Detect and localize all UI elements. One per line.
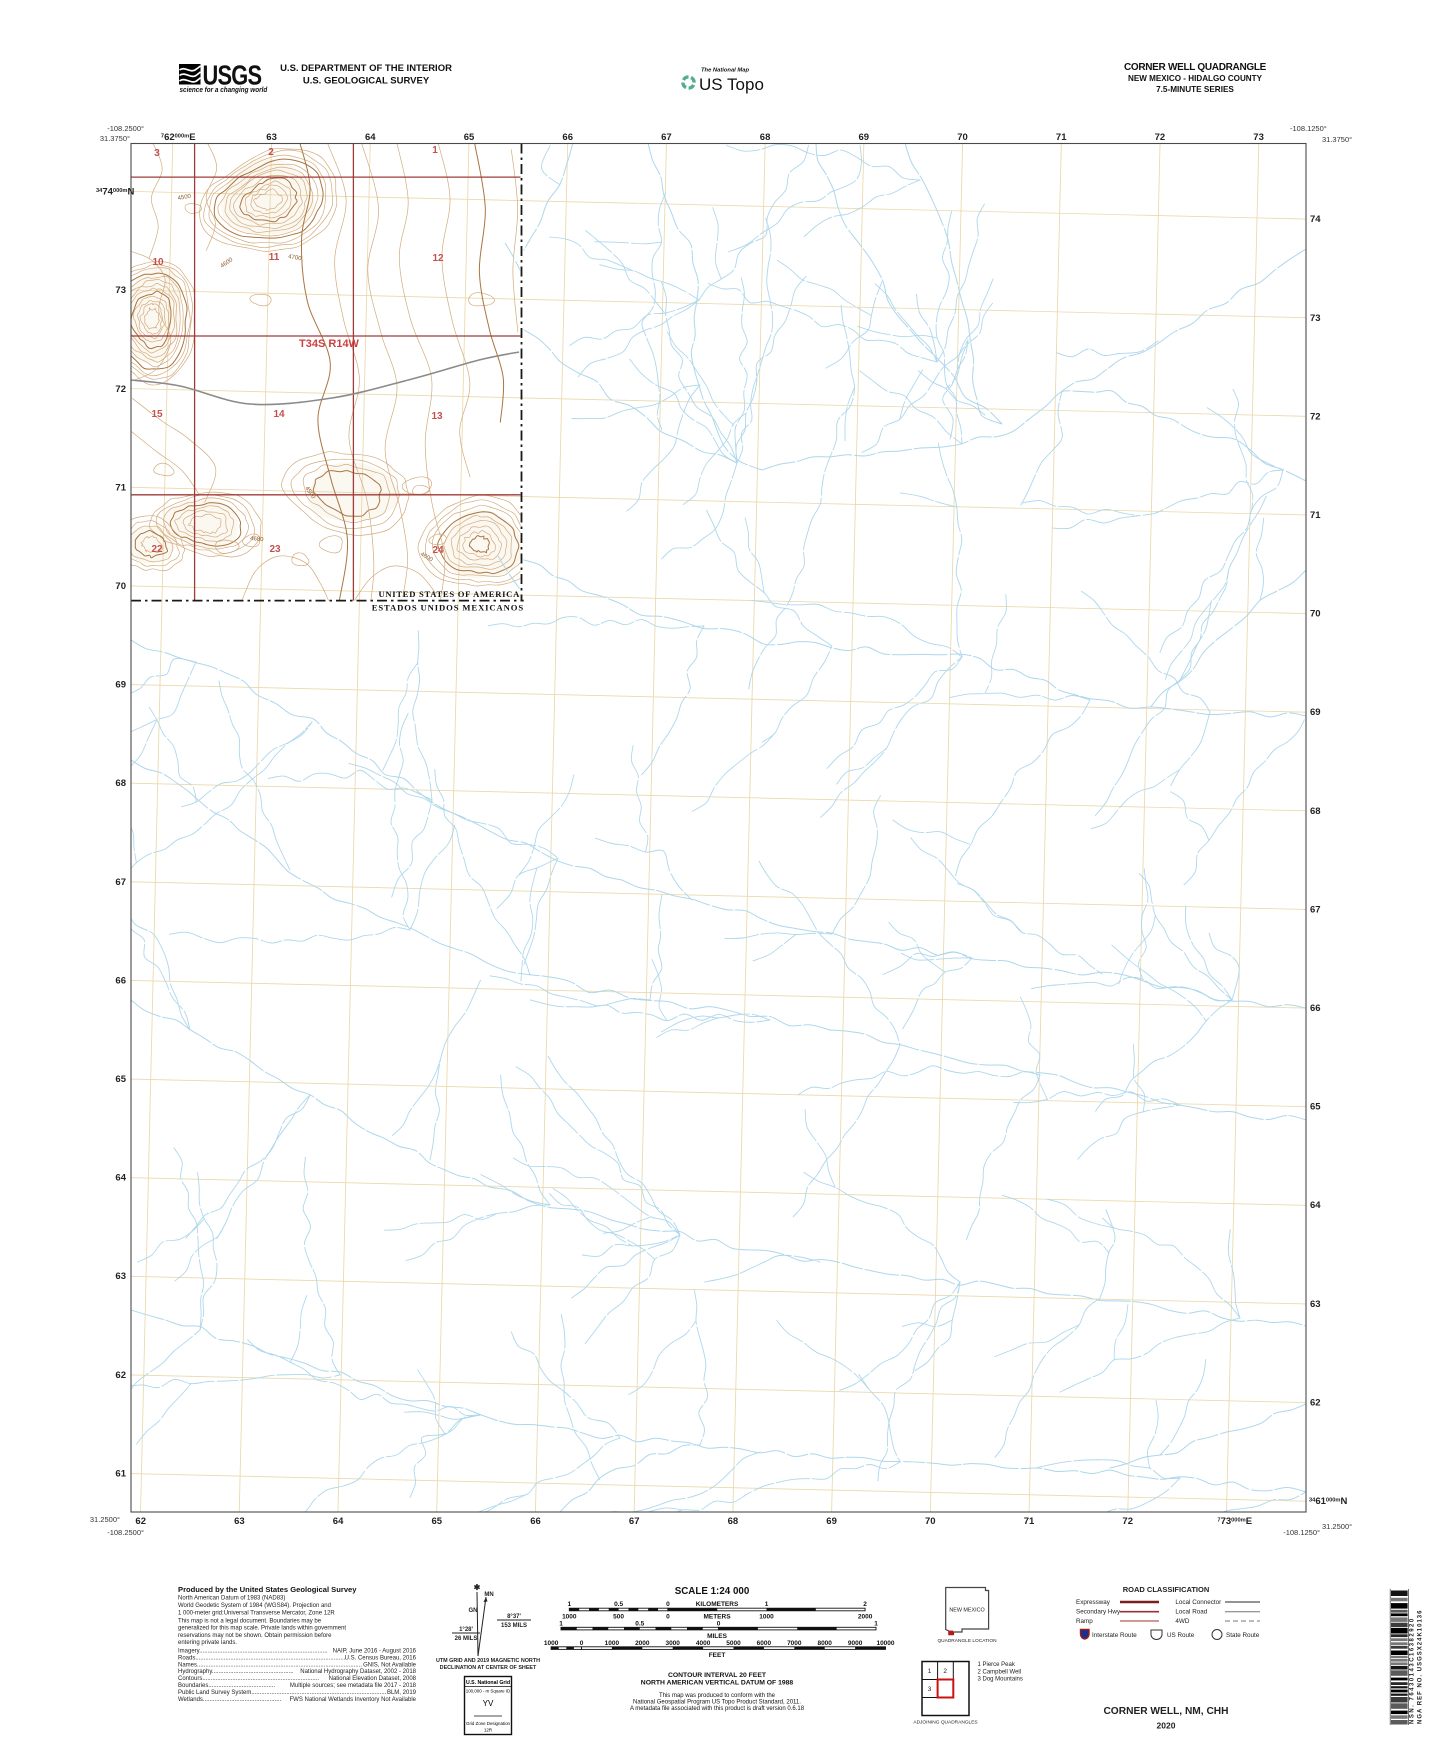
svg-text:62: 62: [1310, 1397, 1321, 1408]
svg-text:U.S. GEOLOGICAL SURVEY: U.S. GEOLOGICAL SURVEY: [303, 76, 430, 87]
svg-text:63: 63: [266, 132, 277, 143]
svg-text:63: 63: [115, 1271, 126, 1282]
svg-text:-108.2500°: -108.2500°: [107, 124, 144, 133]
svg-text:0: 0: [666, 1601, 670, 1608]
svg-text:71: 71: [1056, 132, 1067, 143]
svg-text:64: 64: [1310, 1200, 1321, 1211]
svg-text:67: 67: [115, 877, 126, 888]
svg-text:68: 68: [728, 1516, 739, 1527]
svg-text:64: 64: [115, 1173, 126, 1184]
svg-text:1: 1: [874, 1620, 878, 1627]
svg-text:U.S. DEPARTMENT OF THE INTERIO: U.S. DEPARTMENT OF THE INTERIOR: [280, 63, 452, 74]
svg-text:69: 69: [1310, 707, 1321, 718]
svg-text:4WD: 4WD: [1175, 1618, 1189, 1625]
svg-text:1: 1: [567, 1601, 571, 1608]
svg-text:3: 3: [928, 1686, 932, 1693]
svg-text:NAIP, June 2016 - August 2016: NAIP, June 2016 - August 2016: [333, 1649, 417, 1655]
svg-text:This map was produced to confo: This map was produced to conform with th…: [659, 1693, 776, 1699]
svg-text:World Geodetic System of 1984: World Geodetic System of 1984 (WGS84). P…: [178, 1603, 331, 1609]
svg-text:1 Pierce Peak: 1 Pierce Peak: [978, 1662, 1016, 1668]
svg-text:7.5-MINUTE SERIES: 7.5-MINUTE SERIES: [1156, 85, 1234, 94]
svg-text:National Elevation Dataset, 20: National Elevation Dataset, 2008: [329, 1676, 417, 1682]
svg-text:NSN. 76430143C16382920: NSN. 76430143C16382920: [1410, 1617, 1416, 1724]
svg-text:63: 63: [234, 1516, 245, 1527]
svg-text:CORNER WELL, NM, CHH: CORNER WELL, NM, CHH: [1103, 1706, 1228, 1717]
svg-text:-108.1250°: -108.1250°: [1283, 1528, 1320, 1537]
svg-text:68: 68: [760, 132, 771, 143]
svg-text:Grid Zone Designation: Grid Zone Designation: [466, 1721, 510, 1726]
svg-text:66: 66: [1310, 1003, 1321, 1014]
svg-text:Roads.........................: Roads...................................…: [178, 1655, 346, 1661]
svg-text:70: 70: [115, 581, 126, 592]
svg-text:3000: 3000: [665, 1640, 680, 1647]
svg-text:31.3750°: 31.3750°: [1322, 135, 1352, 144]
svg-text:153 MILS: 153 MILS: [501, 1623, 527, 1629]
svg-text:CORNER WELL QUADRANGLE: CORNER WELL QUADRANGLE: [1124, 62, 1267, 73]
svg-text:MN: MN: [484, 1592, 493, 1598]
svg-text:Interstate Route: Interstate Route: [1092, 1632, 1137, 1639]
svg-text:71: 71: [1310, 510, 1321, 521]
svg-text:-108.2500°: -108.2500°: [107, 1528, 144, 1537]
svg-text:64: 64: [333, 1516, 344, 1527]
svg-text:Multiple sources; see metadata: Multiple sources; see metadata file 2017…: [290, 1683, 417, 1689]
svg-text:2: 2: [863, 1601, 867, 1608]
svg-text:24: 24: [432, 545, 444, 556]
svg-text:67: 67: [661, 132, 672, 143]
svg-text:DECLINATION AT CENTER OF SHEET: DECLINATION AT CENTER OF SHEET: [440, 1665, 537, 1671]
svg-text:10000: 10000: [876, 1640, 894, 1647]
svg-text:9000: 9000: [848, 1640, 863, 1647]
svg-text:U.S. Census Bureau, 2016: U.S. Census Bureau, 2016: [345, 1655, 417, 1661]
svg-text:66: 66: [115, 975, 126, 986]
svg-text:8°37': 8°37': [507, 1614, 521, 1620]
svg-text:72: 72: [1155, 132, 1166, 143]
svg-text:Ramp: Ramp: [1076, 1618, 1093, 1625]
svg-text:2020: 2020: [1157, 1721, 1176, 1731]
svg-text:23: 23: [269, 544, 281, 555]
svg-text:1000: 1000: [562, 1614, 577, 1621]
svg-text:72: 72: [1122, 1516, 1133, 1527]
svg-text:69: 69: [826, 1516, 837, 1527]
svg-text:US Route: US Route: [1167, 1632, 1195, 1639]
svg-text:62: 62: [135, 1516, 146, 1527]
svg-text:7000: 7000: [787, 1640, 802, 1647]
svg-text:70: 70: [925, 1516, 936, 1527]
svg-text:26 MILS: 26 MILS: [455, 1636, 478, 1642]
svg-text:65: 65: [432, 1516, 443, 1527]
svg-text:70: 70: [957, 132, 968, 143]
svg-text:22: 22: [151, 544, 163, 555]
svg-text:✱: ✱: [474, 1583, 481, 1592]
svg-text:FWS National Wetlands Inventor: FWS National Wetlands Inventory Not Avai…: [289, 1697, 416, 1703]
svg-text:68: 68: [1310, 806, 1321, 817]
svg-text:3 Dog Mountains: 3 Dog Mountains: [978, 1677, 1023, 1683]
svg-text:1°28': 1°28': [459, 1627, 473, 1633]
svg-text:Secondary Hwy: Secondary Hwy: [1076, 1609, 1121, 1616]
svg-text:31.2500°: 31.2500°: [90, 1515, 120, 1524]
svg-text:YV: YV: [483, 1699, 494, 1708]
svg-text:A metadata file associated wit: A metadata file associated with this pro…: [630, 1706, 805, 1712]
svg-text:U.S. National Grid: U.S. National Grid: [466, 1680, 510, 1686]
svg-text:100,000 - m Square ID: 100,000 - m Square ID: [466, 1689, 510, 1694]
svg-text:ESTADOS UNIDOS MEXICANOS: ESTADOS UNIDOS MEXICANOS: [372, 603, 524, 613]
svg-text:ADJOINING QUADRANGLES: ADJOINING QUADRANGLES: [913, 1720, 977, 1726]
svg-text:71: 71: [1024, 1516, 1035, 1527]
svg-text:North American Datum of 1983 (: North American Datum of 1983 (NAD83): [178, 1596, 285, 1602]
svg-text:31.3750°: 31.3750°: [100, 134, 130, 143]
svg-text:73: 73: [1310, 313, 1321, 324]
svg-text:71: 71: [115, 482, 126, 493]
svg-text:65: 65: [1310, 1102, 1321, 1113]
svg-text:4680: 4680: [250, 536, 264, 543]
svg-text:2: 2: [268, 147, 274, 158]
svg-text:63: 63: [1310, 1299, 1321, 1310]
svg-text:entering private lands.: entering private lands.: [178, 1640, 237, 1646]
svg-text:GN: GN: [469, 1608, 478, 1614]
svg-text:Produced by the United States: Produced by the United States Geological…: [178, 1585, 357, 1594]
svg-text:10: 10: [152, 257, 164, 268]
svg-text:8000: 8000: [817, 1640, 832, 1647]
svg-text:1 000-meter grid:Universal Tra: 1 000-meter grid:Universal Transverse Me…: [178, 1610, 335, 1616]
svg-text:Contours......................: Contours................................…: [178, 1676, 319, 1682]
svg-text:1: 1: [432, 145, 438, 156]
svg-text:62: 62: [115, 1370, 126, 1381]
svg-text:69: 69: [859, 132, 870, 143]
svg-text:0: 0: [717, 1620, 721, 1627]
svg-text:1000: 1000: [544, 1640, 559, 1647]
svg-text:FEET: FEET: [709, 1652, 726, 1659]
svg-text:1: 1: [559, 1620, 563, 1627]
svg-text:Local Connector: Local Connector: [1175, 1599, 1221, 1606]
svg-text:Boundaries....................: Boundaries..............................…: [178, 1683, 275, 1689]
svg-text:74: 74: [1310, 214, 1321, 225]
svg-text:72: 72: [115, 384, 126, 395]
svg-text:12R: 12R: [484, 1728, 492, 1733]
svg-text:-108.1250°: -108.1250°: [1290, 124, 1327, 133]
svg-text:0: 0: [666, 1614, 670, 1621]
svg-text:66: 66: [562, 132, 573, 143]
svg-text:T34S R14W: T34S R14W: [299, 338, 360, 350]
svg-text:64: 64: [365, 132, 376, 143]
svg-text:73: 73: [1253, 132, 1264, 143]
svg-text:Public Land Survey System.....: Public Land Survey System...............…: [178, 1690, 387, 1696]
svg-text:2 Campbell Well: 2 Campbell Well: [978, 1669, 1022, 1675]
svg-text:NEW MEXICO: NEW MEXICO: [949, 1608, 984, 1614]
svg-text:2: 2: [943, 1668, 947, 1675]
svg-text:UNITED STATES OF AMERICA: UNITED STATES OF AMERICA: [378, 589, 520, 599]
svg-text:Wetlands......................: Wetlands................................…: [178, 1697, 282, 1703]
svg-text:2000: 2000: [858, 1614, 873, 1621]
svg-text:66: 66: [530, 1516, 541, 1527]
svg-text:NEW MEXICO - HIDALGO COUNTY: NEW MEXICO - HIDALGO COUNTY: [1128, 74, 1263, 83]
svg-text:KILOMETERS: KILOMETERS: [696, 1601, 739, 1608]
svg-text:1: 1: [928, 1668, 932, 1675]
svg-text:GNIS, Not Available: GNIS, Not Available: [363, 1662, 417, 1668]
svg-text:6000: 6000: [757, 1640, 772, 1647]
svg-text:NORTH AMERICAN VERTICAL DATUM: NORTH AMERICAN VERTICAL DATUM OF 1988: [641, 1680, 794, 1687]
svg-text:11: 11: [269, 252, 280, 263]
svg-text:CONTOUR INTERVAL 20 FEET: CONTOUR INTERVAL 20 FEET: [668, 1672, 767, 1679]
svg-text:67: 67: [1310, 904, 1321, 915]
svg-text:14: 14: [273, 409, 285, 420]
svg-text:69: 69: [115, 680, 126, 691]
svg-text:31.2500°: 31.2500°: [1322, 1522, 1352, 1531]
svg-text:Local Road: Local Road: [1175, 1609, 1207, 1616]
svg-text:70: 70: [1310, 609, 1321, 620]
svg-text:68: 68: [115, 778, 126, 789]
svg-text:1000: 1000: [605, 1640, 620, 1647]
svg-text:5000: 5000: [726, 1640, 741, 1647]
svg-text:65: 65: [115, 1074, 126, 1085]
svg-text:0.5: 0.5: [614, 1601, 623, 1608]
svg-text:ROAD CLASSIFICATION: ROAD CLASSIFICATION: [1123, 1585, 1210, 1594]
svg-text:12: 12: [432, 253, 444, 264]
svg-text:3: 3: [154, 148, 160, 159]
svg-text:National Hydrography Dataset,: National Hydrography Dataset, 2002 - 201…: [300, 1669, 416, 1675]
svg-text:61: 61: [115, 1468, 126, 1479]
svg-text:72: 72: [1310, 411, 1321, 422]
svg-text:2000: 2000: [635, 1640, 650, 1647]
svg-text:15: 15: [151, 409, 163, 420]
svg-text:500: 500: [613, 1614, 624, 1621]
svg-text:Imagery.......................: Imagery.................................…: [178, 1649, 328, 1655]
svg-text:UTM GRID AND 2019 MAGNETIC NOR: UTM GRID AND 2019 MAGNETIC NORTH: [436, 1658, 540, 1664]
svg-text:67: 67: [629, 1516, 640, 1527]
svg-text:National Geospatial Program US: National Geospatial Program US Topo Prod…: [633, 1700, 801, 1706]
svg-text:MILES: MILES: [707, 1633, 728, 1640]
svg-text:NGA REF NO. USGSX24K10136: NGA REF NO. USGSX24K10136: [1418, 1610, 1424, 1724]
svg-text:0: 0: [580, 1640, 584, 1647]
svg-text:4000: 4000: [696, 1640, 711, 1647]
svg-text:1: 1: [765, 1601, 769, 1608]
svg-text:0.5: 0.5: [635, 1620, 644, 1627]
svg-text:State Route: State Route: [1226, 1632, 1260, 1639]
svg-text:73: 73: [115, 285, 126, 296]
svg-text:reservations may not be shown.: reservations may not be shown. Obtain pe…: [178, 1633, 332, 1639]
svg-text:science for a changing world: science for a changing world: [180, 87, 268, 95]
svg-text:1000: 1000: [759, 1614, 774, 1621]
svg-text:Names.........................: Names...................................…: [178, 1662, 362, 1668]
svg-text:This map is not a legal docume: This map is not a legal document. Bounda…: [178, 1619, 322, 1625]
svg-text:SCALE 1:24 000: SCALE 1:24 000: [675, 1586, 750, 1597]
svg-text:Hydrography...................: Hydrography.............................…: [178, 1669, 294, 1675]
svg-text:The National Map: The National Map: [701, 68, 749, 74]
svg-text:Expressway: Expressway: [1076, 1599, 1111, 1606]
svg-text:13: 13: [431, 411, 443, 422]
svg-text:US Topo: US Topo: [699, 75, 764, 94]
svg-text:generalized for this map scale: generalized for this map scale. Private …: [178, 1626, 346, 1632]
svg-text:65: 65: [464, 132, 475, 143]
svg-text:BLM, 2019: BLM, 2019: [387, 1690, 417, 1696]
svg-text:QUADRANGLE LOCATION: QUADRANGLE LOCATION: [937, 1638, 997, 1644]
